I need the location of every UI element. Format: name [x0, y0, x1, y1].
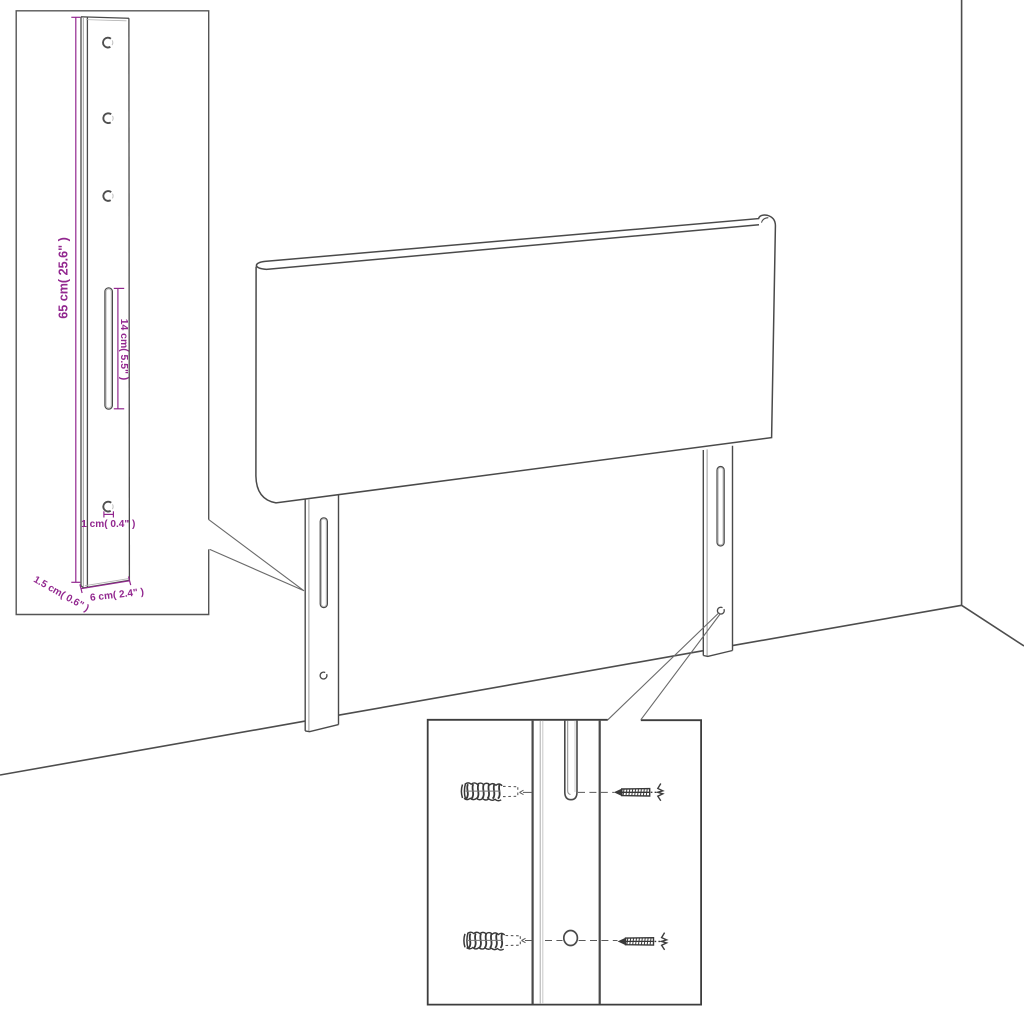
svg-text:14 cm( 5.5" ): 14 cm( 5.5" )	[118, 319, 129, 381]
svg-text:65 cm( 25.6" ): 65 cm( 25.6" )	[56, 237, 70, 319]
svg-text:1 cm( 0.4" ): 1 cm( 0.4" )	[81, 519, 135, 530]
